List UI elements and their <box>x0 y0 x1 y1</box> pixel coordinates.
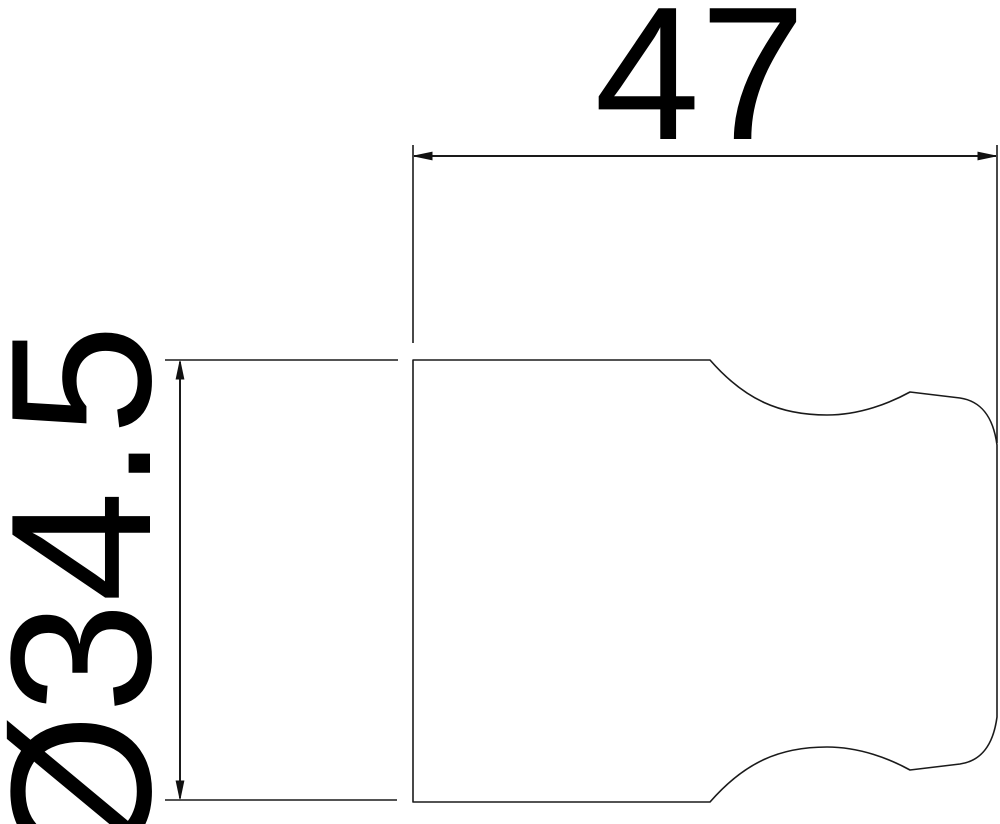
diameter-dimension-label: Ø34.5 <box>0 324 193 824</box>
technical-drawing-canvas: 47 Ø34.5 <box>0 0 1000 824</box>
width-dimension: 47 <box>413 0 997 443</box>
arrow-left-icon <box>414 152 432 160</box>
drawing-svg: 47 Ø34.5 <box>0 0 1000 824</box>
arrow-right-icon <box>978 152 996 160</box>
diameter-dimension: Ø34.5 <box>0 324 398 824</box>
part-outline <box>413 360 997 802</box>
width-dimension-label: 47 <box>594 0 805 180</box>
